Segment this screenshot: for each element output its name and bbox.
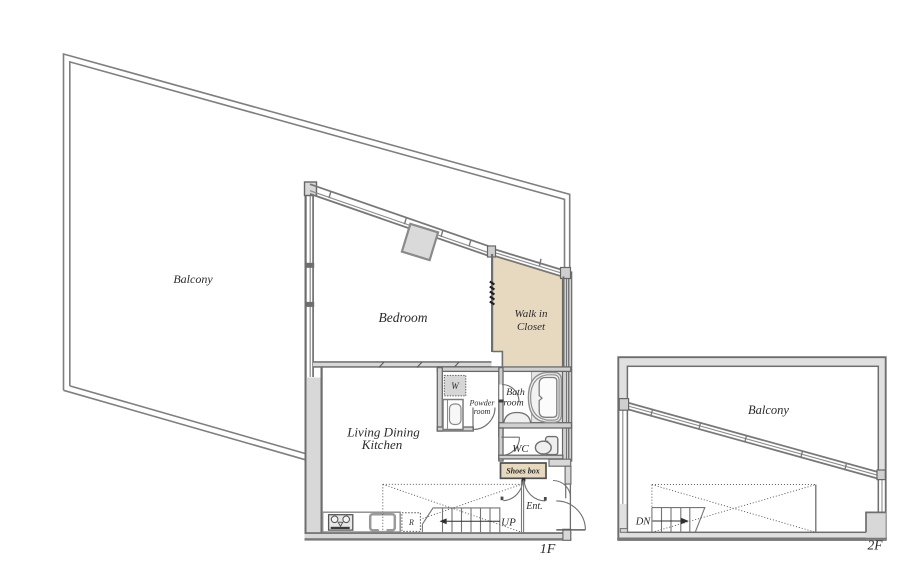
svg-text:Bedroom: Bedroom xyxy=(379,310,428,325)
svg-text:room: room xyxy=(503,398,523,409)
svg-text:Balcony: Balcony xyxy=(173,272,213,286)
svg-text:Shoes box: Shoes box xyxy=(506,467,540,476)
svg-text:WC: WC xyxy=(512,443,529,455)
svg-text:Kitchen: Kitchen xyxy=(361,437,402,452)
svg-text:UP: UP xyxy=(501,517,516,529)
svg-text:Ent.: Ent. xyxy=(525,501,542,512)
svg-text:DN: DN xyxy=(635,517,652,528)
svg-text:Bath: Bath xyxy=(506,387,525,398)
svg-text:1F: 1F xyxy=(540,542,556,557)
svg-text:Balcony: Balcony xyxy=(748,403,789,417)
svg-text:room: room xyxy=(474,407,491,416)
svg-text:2F: 2F xyxy=(868,538,884,553)
svg-text:Walk in: Walk in xyxy=(515,308,548,320)
svg-text:Closet: Closet xyxy=(517,321,546,333)
svg-text:R: R xyxy=(408,518,414,527)
